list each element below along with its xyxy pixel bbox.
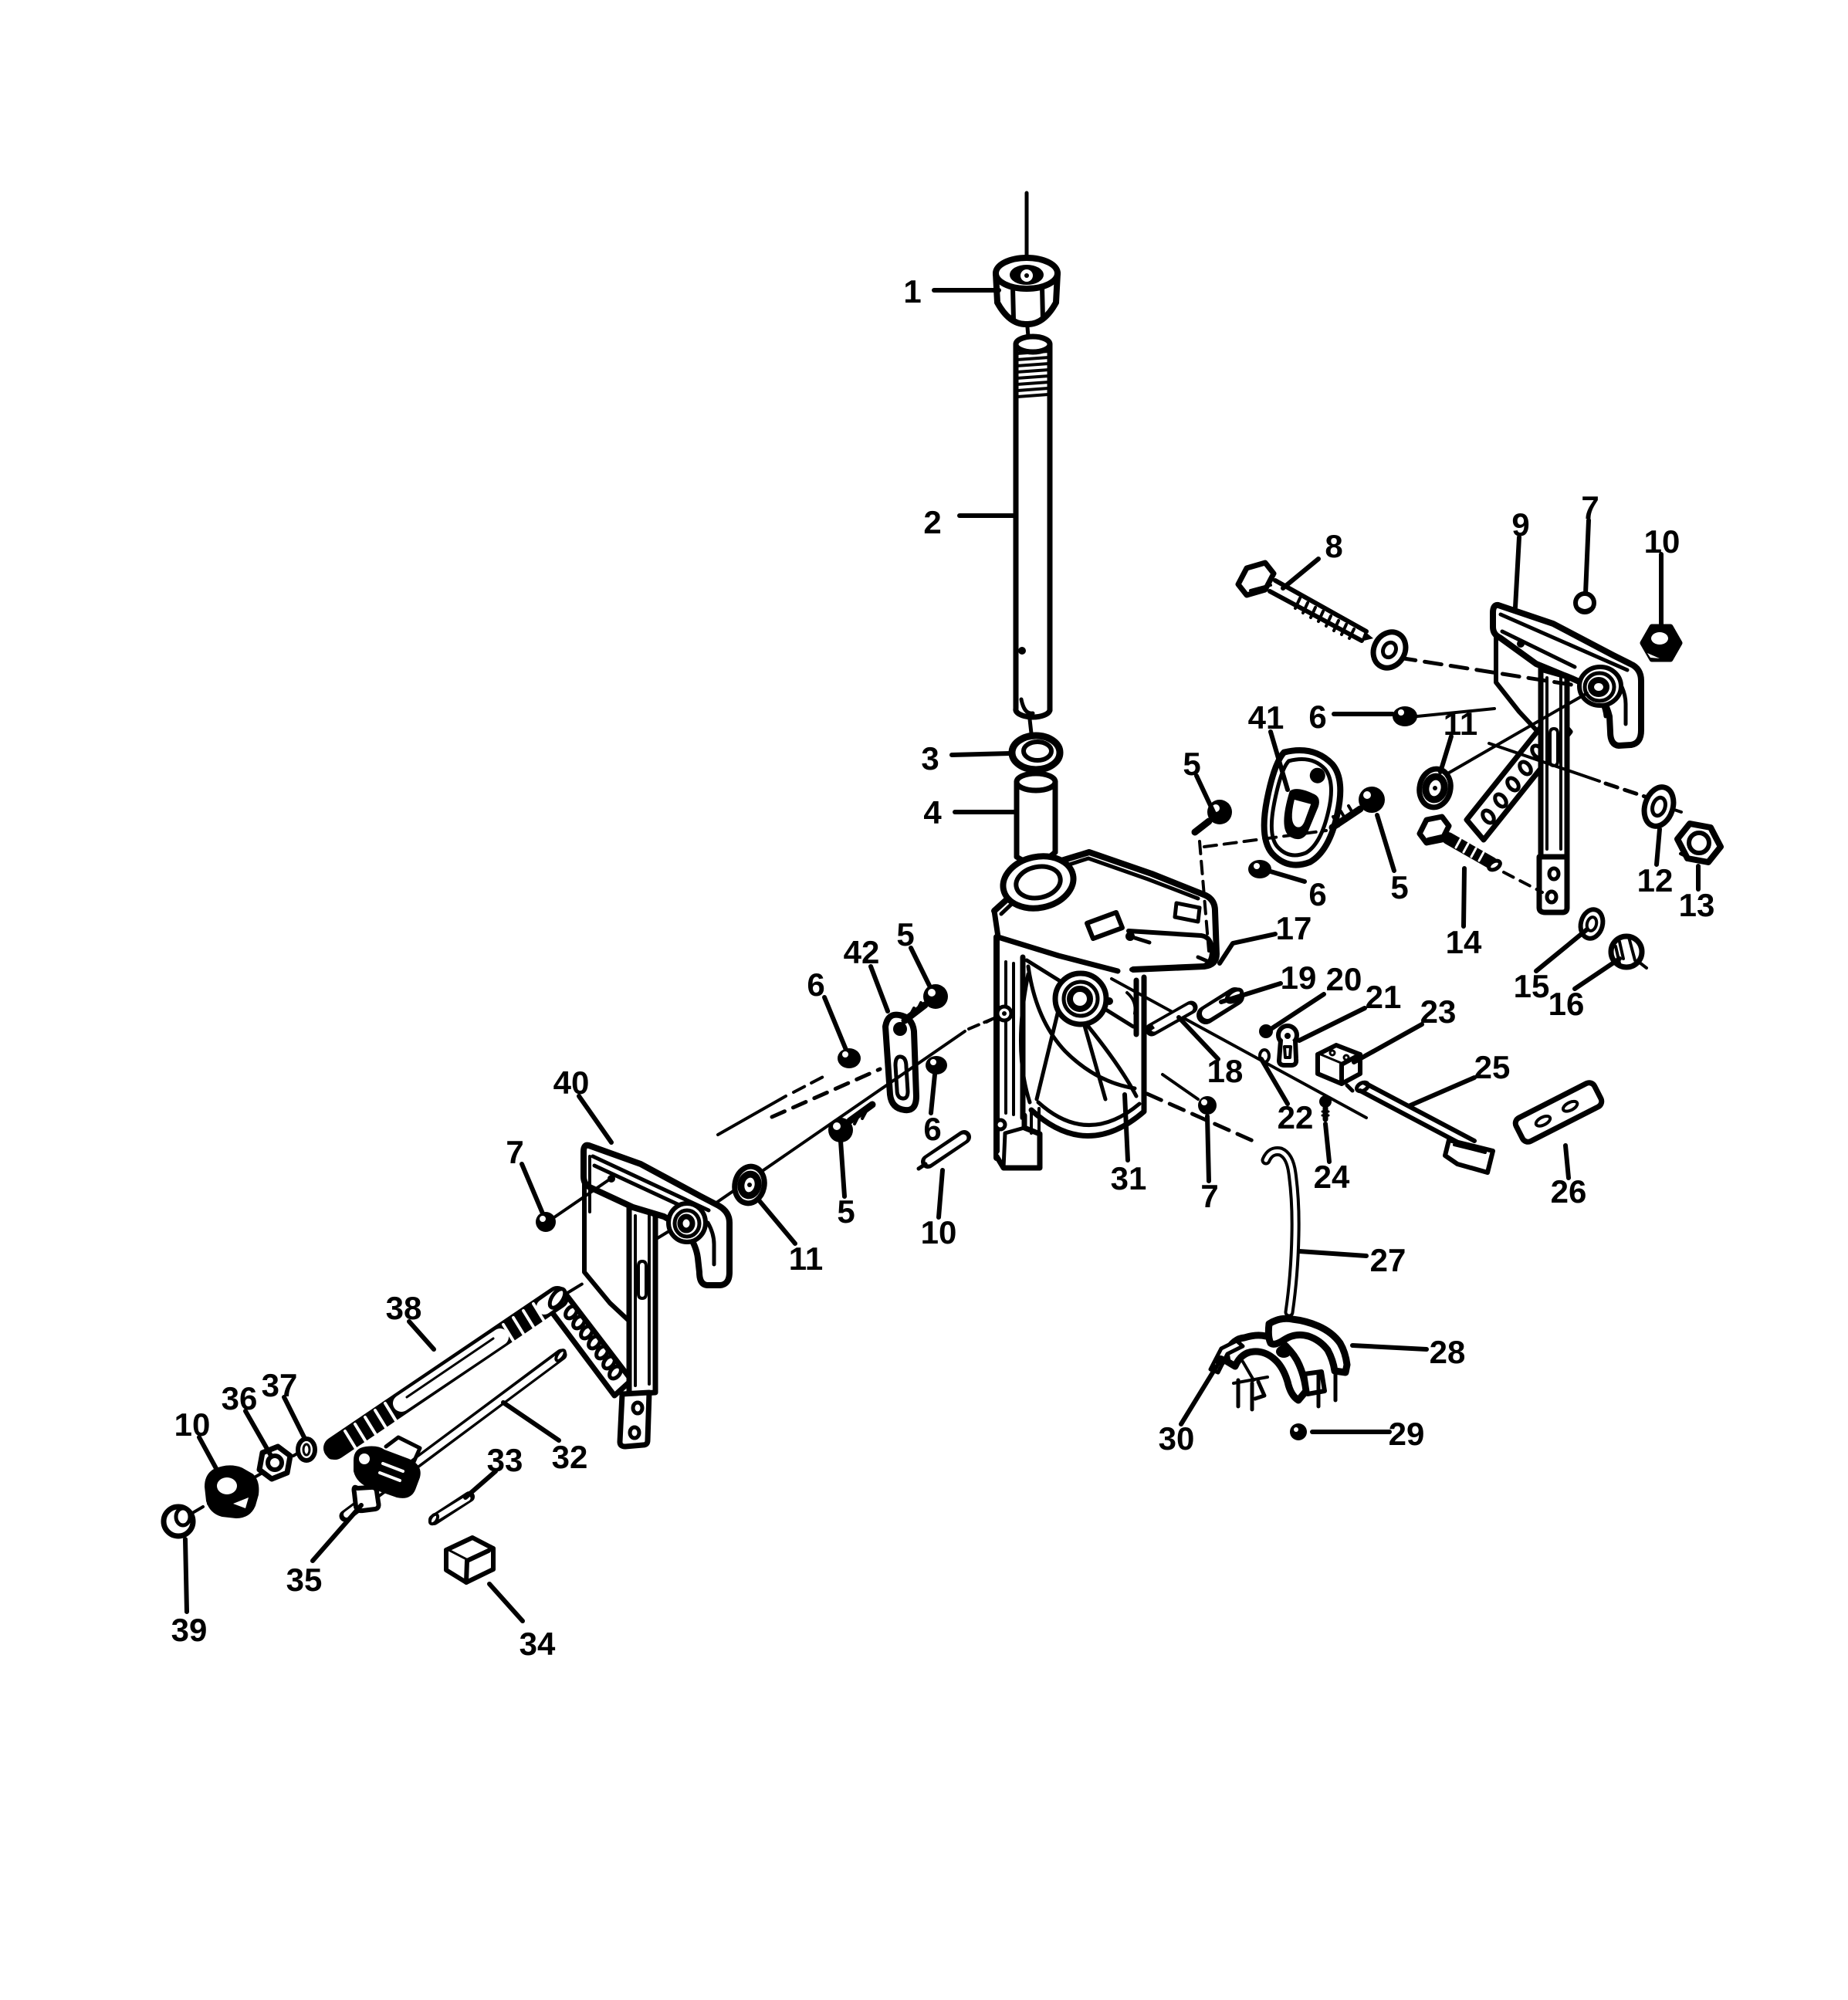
svg-text:18: 18 bbox=[1207, 1053, 1244, 1089]
svg-text:2: 2 bbox=[923, 504, 941, 540]
svg-text:10: 10 bbox=[1644, 523, 1680, 560]
svg-text:35: 35 bbox=[286, 1562, 323, 1598]
svg-text:28: 28 bbox=[1430, 1334, 1466, 1370]
svg-text:26: 26 bbox=[1551, 1173, 1587, 1210]
svg-text:34: 34 bbox=[520, 1626, 556, 1662]
svg-text:9: 9 bbox=[1511, 506, 1529, 543]
svg-text:12: 12 bbox=[1637, 862, 1674, 898]
svg-text:22: 22 bbox=[1278, 1099, 1314, 1135]
svg-text:24: 24 bbox=[1314, 1159, 1350, 1195]
svg-text:10: 10 bbox=[921, 1214, 957, 1250]
svg-text:42: 42 bbox=[844, 934, 880, 970]
svg-text:6: 6 bbox=[1308, 876, 1326, 912]
svg-text:20: 20 bbox=[1326, 961, 1362, 997]
svg-text:38: 38 bbox=[386, 1290, 422, 1326]
svg-text:1: 1 bbox=[903, 273, 921, 310]
svg-text:6: 6 bbox=[807, 966, 824, 1003]
svg-text:5: 5 bbox=[1390, 869, 1408, 905]
svg-text:8: 8 bbox=[1325, 528, 1342, 564]
svg-text:5: 5 bbox=[837, 1193, 855, 1230]
svg-text:36: 36 bbox=[222, 1380, 258, 1416]
svg-text:29: 29 bbox=[1389, 1416, 1425, 1452]
svg-text:19: 19 bbox=[1281, 959, 1317, 996]
svg-text:15: 15 bbox=[1514, 968, 1550, 1004]
svg-text:16: 16 bbox=[1548, 986, 1585, 1022]
svg-text:25: 25 bbox=[1474, 1049, 1511, 1085]
svg-text:10: 10 bbox=[174, 1406, 211, 1443]
svg-text:7: 7 bbox=[506, 1134, 523, 1170]
svg-text:3: 3 bbox=[921, 740, 939, 777]
svg-text:7: 7 bbox=[1581, 489, 1599, 526]
svg-text:11: 11 bbox=[1444, 706, 1477, 742]
svg-text:5: 5 bbox=[1183, 746, 1200, 782]
svg-text:33: 33 bbox=[487, 1442, 523, 1478]
svg-text:31: 31 bbox=[1111, 1160, 1147, 1196]
svg-text:6: 6 bbox=[923, 1111, 941, 1147]
svg-text:40: 40 bbox=[553, 1064, 590, 1101]
svg-text:14: 14 bbox=[1446, 924, 1482, 960]
svg-text:37: 37 bbox=[262, 1367, 298, 1403]
svg-text:23: 23 bbox=[1420, 993, 1457, 1030]
svg-text:17: 17 bbox=[1276, 910, 1312, 946]
svg-text:11: 11 bbox=[789, 1240, 823, 1277]
svg-text:6: 6 bbox=[1308, 699, 1326, 735]
svg-text:27: 27 bbox=[1370, 1242, 1406, 1278]
svg-text:32: 32 bbox=[552, 1439, 588, 1475]
svg-text:4: 4 bbox=[923, 794, 942, 831]
svg-text:5: 5 bbox=[896, 916, 914, 953]
svg-text:30: 30 bbox=[1159, 1420, 1195, 1457]
svg-text:41: 41 bbox=[1248, 699, 1284, 736]
svg-text:7: 7 bbox=[1200, 1178, 1218, 1214]
svg-text:13: 13 bbox=[1679, 887, 1715, 923]
svg-text:39: 39 bbox=[171, 1612, 208, 1648]
svg-text:21: 21 bbox=[1366, 979, 1402, 1015]
